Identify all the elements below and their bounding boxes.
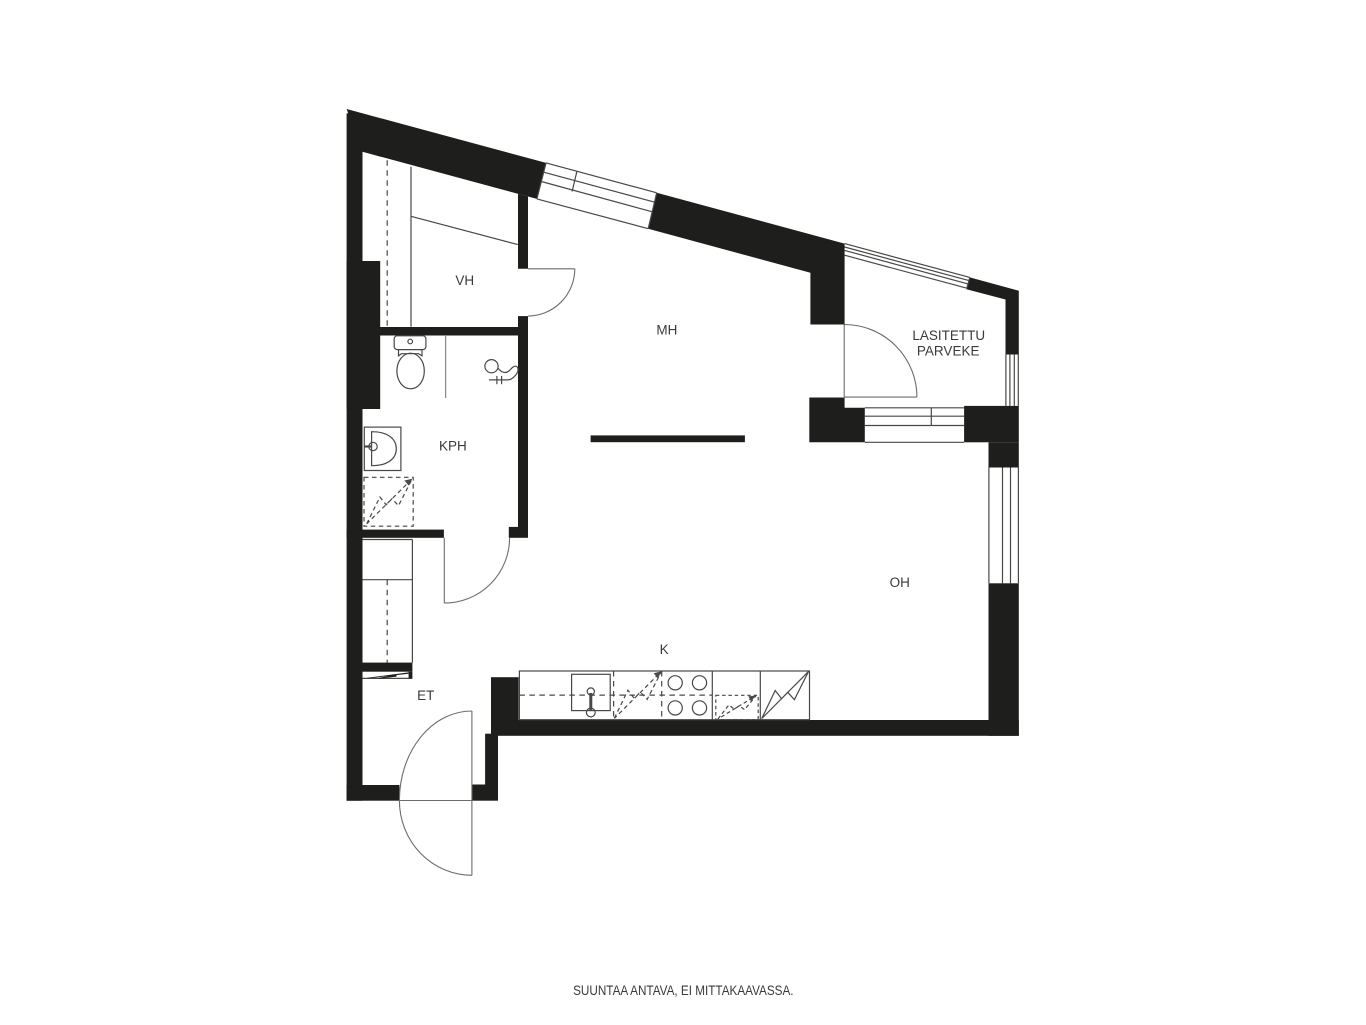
svg-text:K: K (660, 642, 669, 657)
svg-text:SUUNTAA ANTAVA, EI MITTAKAAVAS: SUUNTAA ANTAVA, EI MITTAKAAVASSA. (573, 983, 793, 998)
svg-text:MH: MH (656, 323, 677, 338)
svg-text:VH: VH (455, 273, 474, 288)
svg-text:LASITETTU: LASITETTU (912, 328, 985, 343)
svg-text:ET: ET (417, 688, 434, 703)
svg-text:PARVEKE: PARVEKE (917, 344, 980, 359)
svg-text:KPH: KPH (439, 439, 467, 454)
svg-text:OH: OH (890, 575, 910, 590)
